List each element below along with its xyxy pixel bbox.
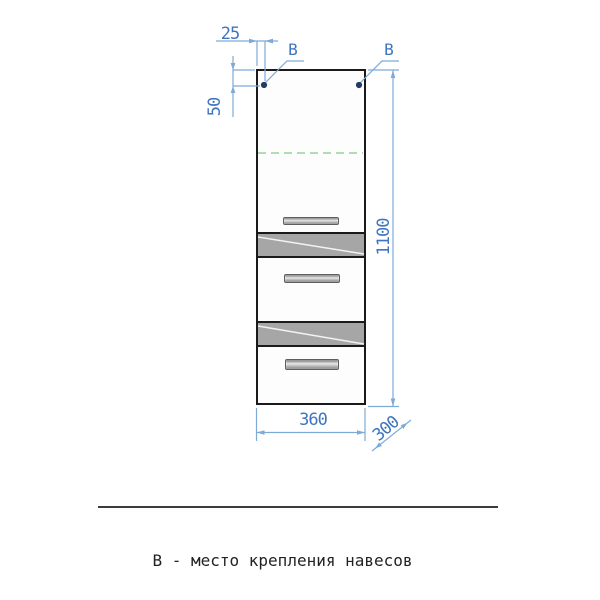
drawer1-handle <box>284 274 340 283</box>
mount-label-left: В <box>284 42 302 58</box>
technical-drawing-page: 25 50 1100 360 300 В В В - место креплен… <box>0 0 600 600</box>
dim-label-height: 1100 <box>376 214 392 260</box>
door-handle <box>283 217 339 225</box>
mount-label-right: В <box>380 42 398 58</box>
drawing-caption: В - место крепления навесов <box>60 552 505 570</box>
dim-label-width: 360 <box>295 412 331 428</box>
drawer1-top-panel <box>258 232 364 258</box>
dim-label-depth: 300 <box>367 411 405 446</box>
drawer2-top-panel <box>258 321 364 347</box>
drawer2-handle <box>285 359 339 370</box>
footer-separator-line <box>98 506 498 508</box>
dim-label-hole-offset-x: 25 <box>216 26 244 42</box>
dim-label-hole-offset-y: 50 <box>207 93 223 121</box>
